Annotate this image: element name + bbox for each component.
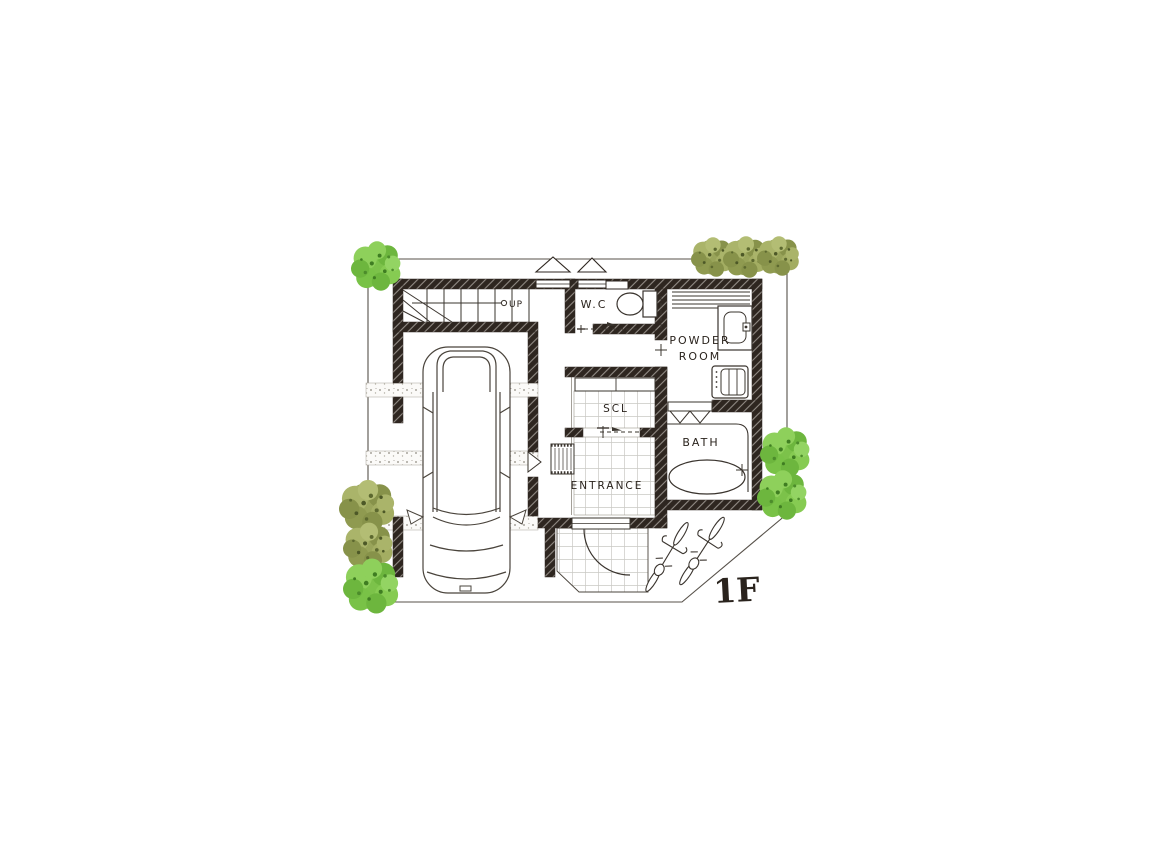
powder-room-label-1: POWDER	[669, 334, 730, 347]
washing-machine	[712, 366, 748, 398]
entrance-floor	[574, 437, 655, 515]
powder-room-label-2: ROOM	[679, 350, 721, 363]
wc-label: W.C	[581, 298, 608, 311]
porch-tiles	[557, 528, 648, 592]
car	[407, 347, 526, 593]
tree-right-2	[757, 470, 806, 519]
bath-label: BATH	[682, 436, 719, 449]
up-label: UP	[509, 300, 523, 310]
bath-folding-door	[668, 402, 712, 423]
entrance-label: ENTRANCE	[571, 480, 644, 492]
toilet	[617, 291, 657, 317]
vent-triangle	[578, 258, 606, 272]
floor-label: 1F	[712, 570, 760, 611]
tree-left-3	[343, 558, 398, 613]
tree-top-right-3	[757, 236, 799, 276]
doormat	[551, 444, 574, 474]
top-wall-windows	[536, 257, 628, 289]
scl-label: SCL	[603, 403, 629, 415]
floor-plan-canvas: UP	[0, 0, 1150, 865]
tree-top-left	[351, 241, 400, 290]
bathtub	[669, 460, 745, 494]
tree-right-1	[760, 427, 809, 476]
floor-plan-drawing: UP	[0, 0, 1150, 865]
scl-shelf	[575, 378, 655, 391]
